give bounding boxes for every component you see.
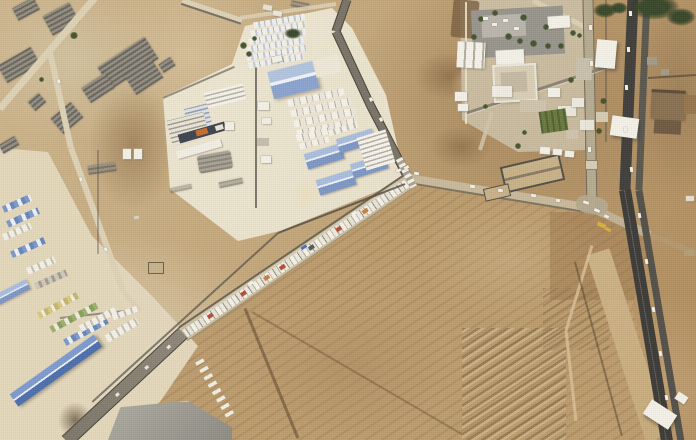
gray-shed — [661, 69, 669, 75]
tree — [483, 104, 488, 109]
building — [548, 15, 571, 29]
road-canopy — [595, 39, 617, 69]
building — [458, 104, 468, 111]
shed — [585, 160, 598, 170]
vehicle — [659, 351, 663, 356]
shed — [257, 138, 269, 146]
building — [572, 98, 584, 107]
vehicle — [665, 395, 669, 400]
shed — [540, 147, 551, 155]
vehicle-white — [167, 345, 172, 350]
tree — [240, 42, 247, 49]
building — [548, 88, 560, 97]
compound-wall — [255, 62, 257, 208]
tree-clump — [284, 28, 302, 39]
vehicle — [514, 27, 519, 30]
vehicle-tan — [134, 216, 139, 220]
vehicle — [588, 147, 591, 152]
vehicle — [590, 61, 593, 66]
vegetation-clump — [666, 8, 696, 26]
vehicle-white — [145, 365, 150, 370]
vehicle — [498, 189, 503, 193]
tree — [568, 77, 574, 83]
tree — [515, 143, 521, 149]
tree — [520, 14, 527, 21]
building — [566, 130, 578, 139]
tree — [471, 34, 477, 40]
main-building-wings — [492, 63, 538, 103]
vehicle — [630, 167, 634, 172]
satellite-image — [0, 0, 696, 440]
shed — [553, 149, 562, 156]
plot-fence — [97, 150, 99, 254]
building — [596, 112, 608, 122]
truck-white — [215, 124, 224, 131]
vehicle — [652, 307, 656, 312]
building — [492, 86, 512, 97]
building — [455, 92, 467, 101]
vehicle — [627, 47, 630, 52]
tree — [522, 130, 527, 135]
tree — [545, 43, 551, 49]
vehicle — [414, 172, 419, 176]
gray-shed — [647, 57, 657, 65]
brown-building — [654, 119, 682, 134]
tree — [246, 51, 252, 57]
container-pair — [134, 149, 142, 159]
shed — [686, 196, 694, 201]
tree — [558, 43, 564, 49]
vehicle — [645, 259, 649, 264]
shed — [225, 122, 234, 130]
tree — [530, 40, 537, 47]
vehicle — [629, 11, 632, 16]
small-house — [148, 262, 164, 274]
bay-warehouse — [456, 41, 485, 68]
truck-orange — [195, 127, 208, 136]
vehicle — [492, 23, 497, 26]
brown-building — [684, 95, 696, 114]
brown-building — [650, 89, 685, 120]
tree — [543, 24, 549, 30]
container-pair — [123, 149, 131, 159]
green-field — [539, 108, 569, 134]
vehicle — [624, 127, 627, 132]
tree — [517, 38, 523, 44]
vehicle — [556, 199, 560, 203]
tree — [596, 128, 602, 134]
vehicle — [589, 25, 592, 30]
tree — [505, 33, 512, 40]
tree — [577, 33, 582, 38]
tree — [492, 10, 498, 16]
vehicle — [483, 17, 488, 20]
building — [580, 120, 594, 130]
shed — [684, 250, 694, 256]
shed — [258, 102, 269, 110]
vegetation-clump — [593, 3, 617, 18]
tree — [39, 77, 44, 82]
vehicle — [625, 85, 628, 90]
vehicle — [638, 213, 642, 218]
vehicle — [503, 19, 508, 22]
tree — [570, 30, 576, 36]
vehicle-white — [115, 393, 120, 398]
tree — [70, 32, 78, 39]
shed — [262, 118, 271, 124]
tree — [252, 36, 257, 41]
vehicle — [531, 194, 536, 198]
vehicle — [470, 185, 475, 189]
shed — [565, 151, 574, 158]
shed — [261, 156, 271, 163]
building — [520, 100, 546, 112]
tree — [600, 98, 607, 104]
